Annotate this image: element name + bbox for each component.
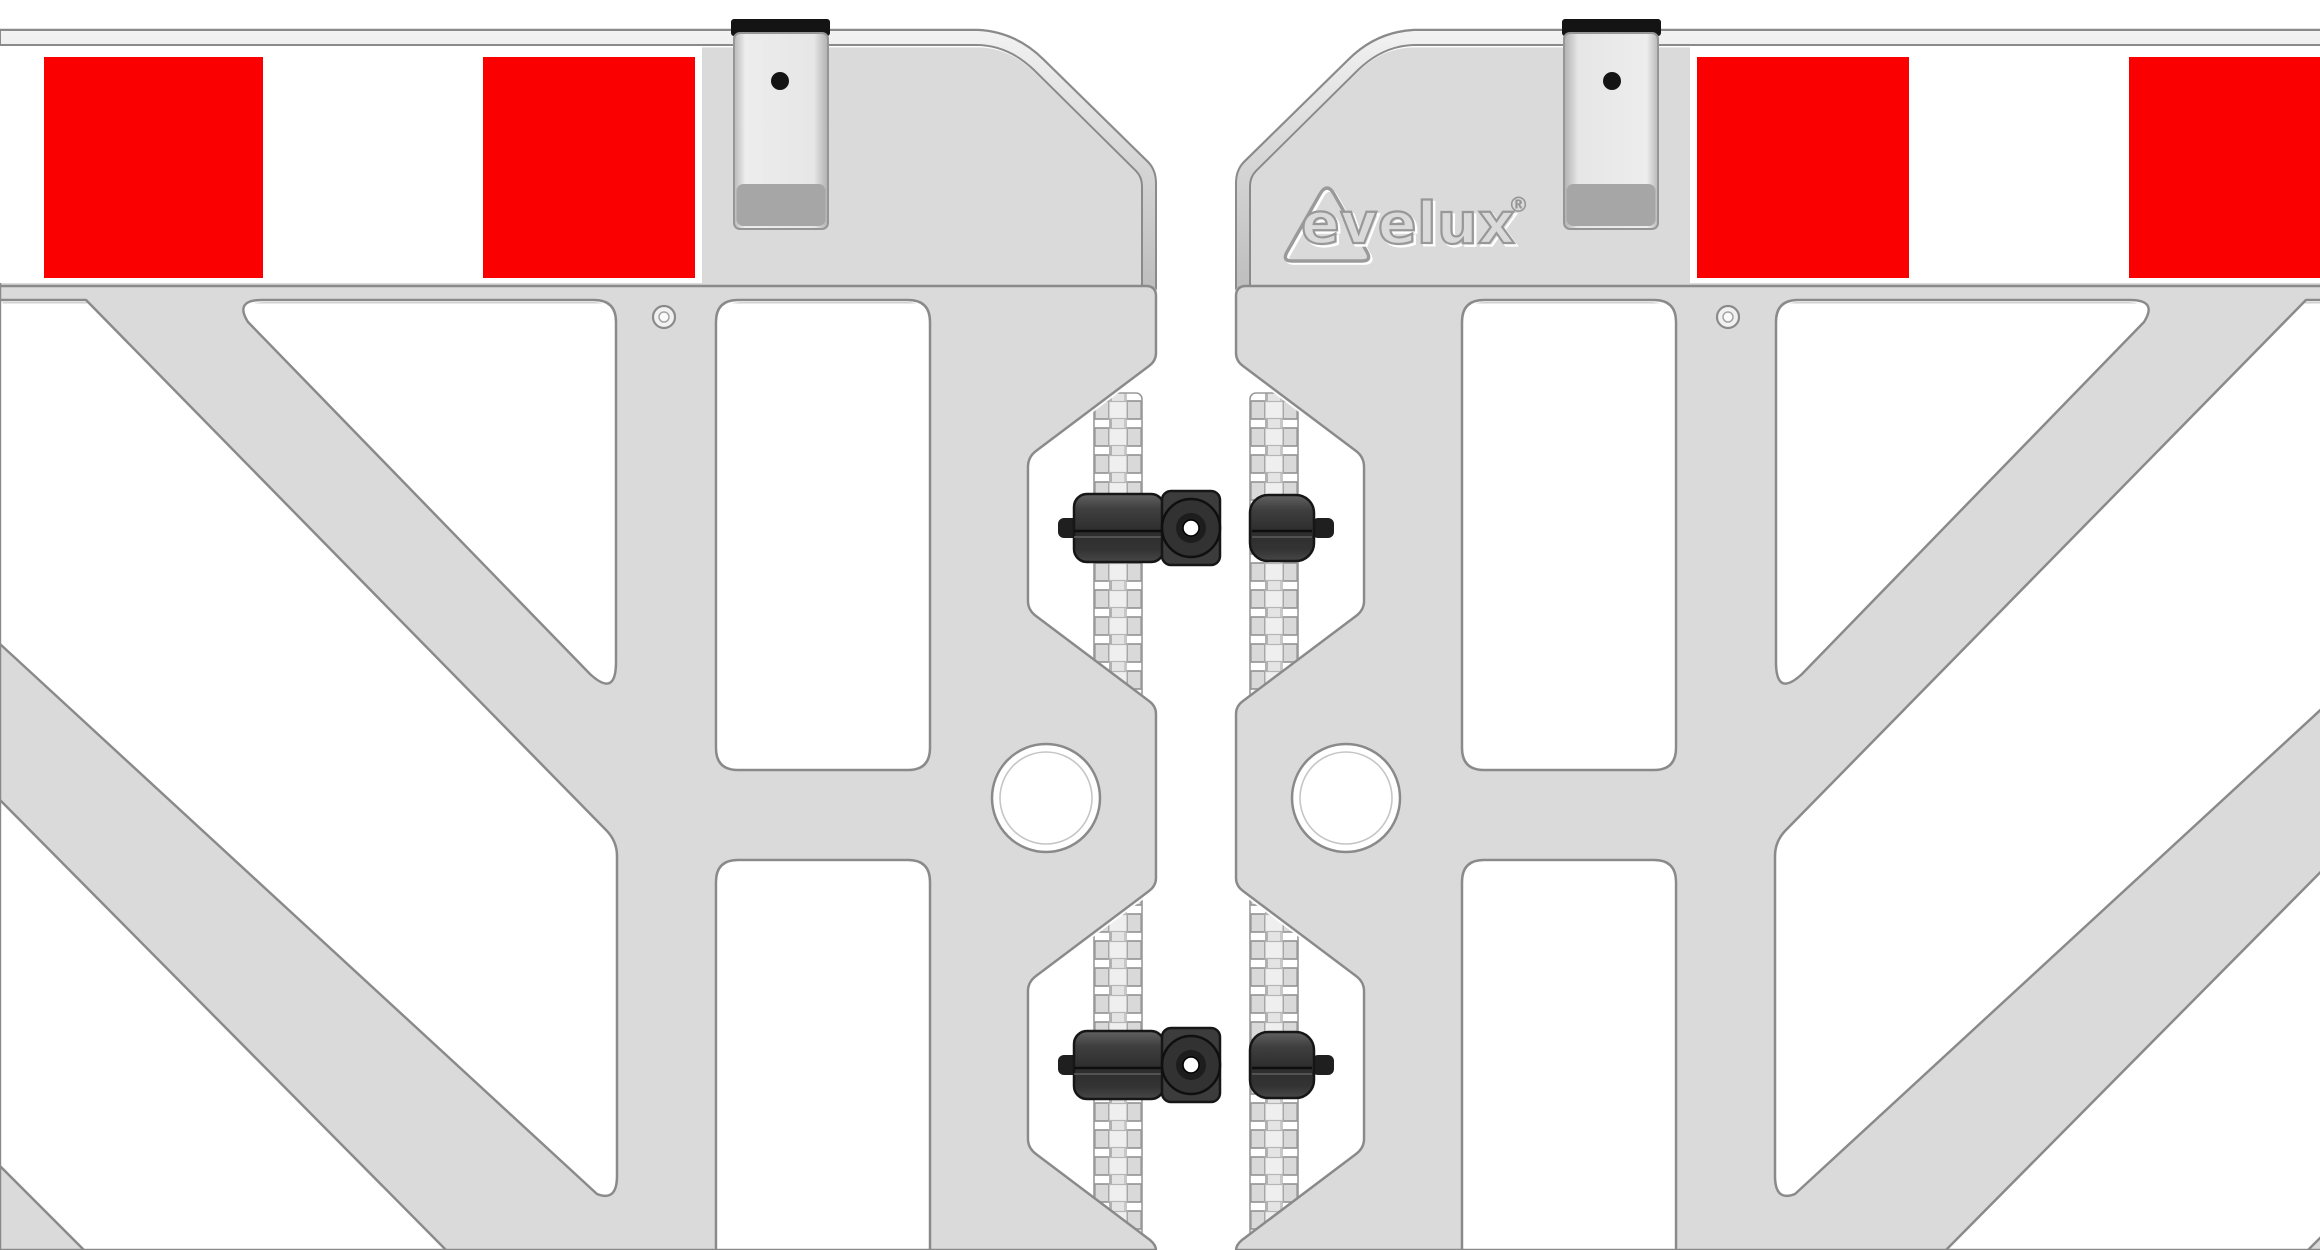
clamp-coupler-upper <box>1058 491 1334 565</box>
red-square <box>44 57 263 278</box>
logo-registered-mark: ® <box>1508 193 1529 217</box>
logo: evelux evelux ® <box>1285 188 1529 263</box>
hanger-bracket-left <box>731 19 830 229</box>
screw-mark-center <box>659 312 669 322</box>
round-hole <box>992 744 1100 852</box>
barrier-illustration: evelux evelux ® <box>0 0 2320 1250</box>
barrier-svg: evelux evelux ® <box>0 0 2320 1250</box>
logo-text: evelux <box>1301 191 1515 257</box>
red-square <box>483 57 695 278</box>
clamp-coupler-lower <box>1058 1028 1334 1102</box>
